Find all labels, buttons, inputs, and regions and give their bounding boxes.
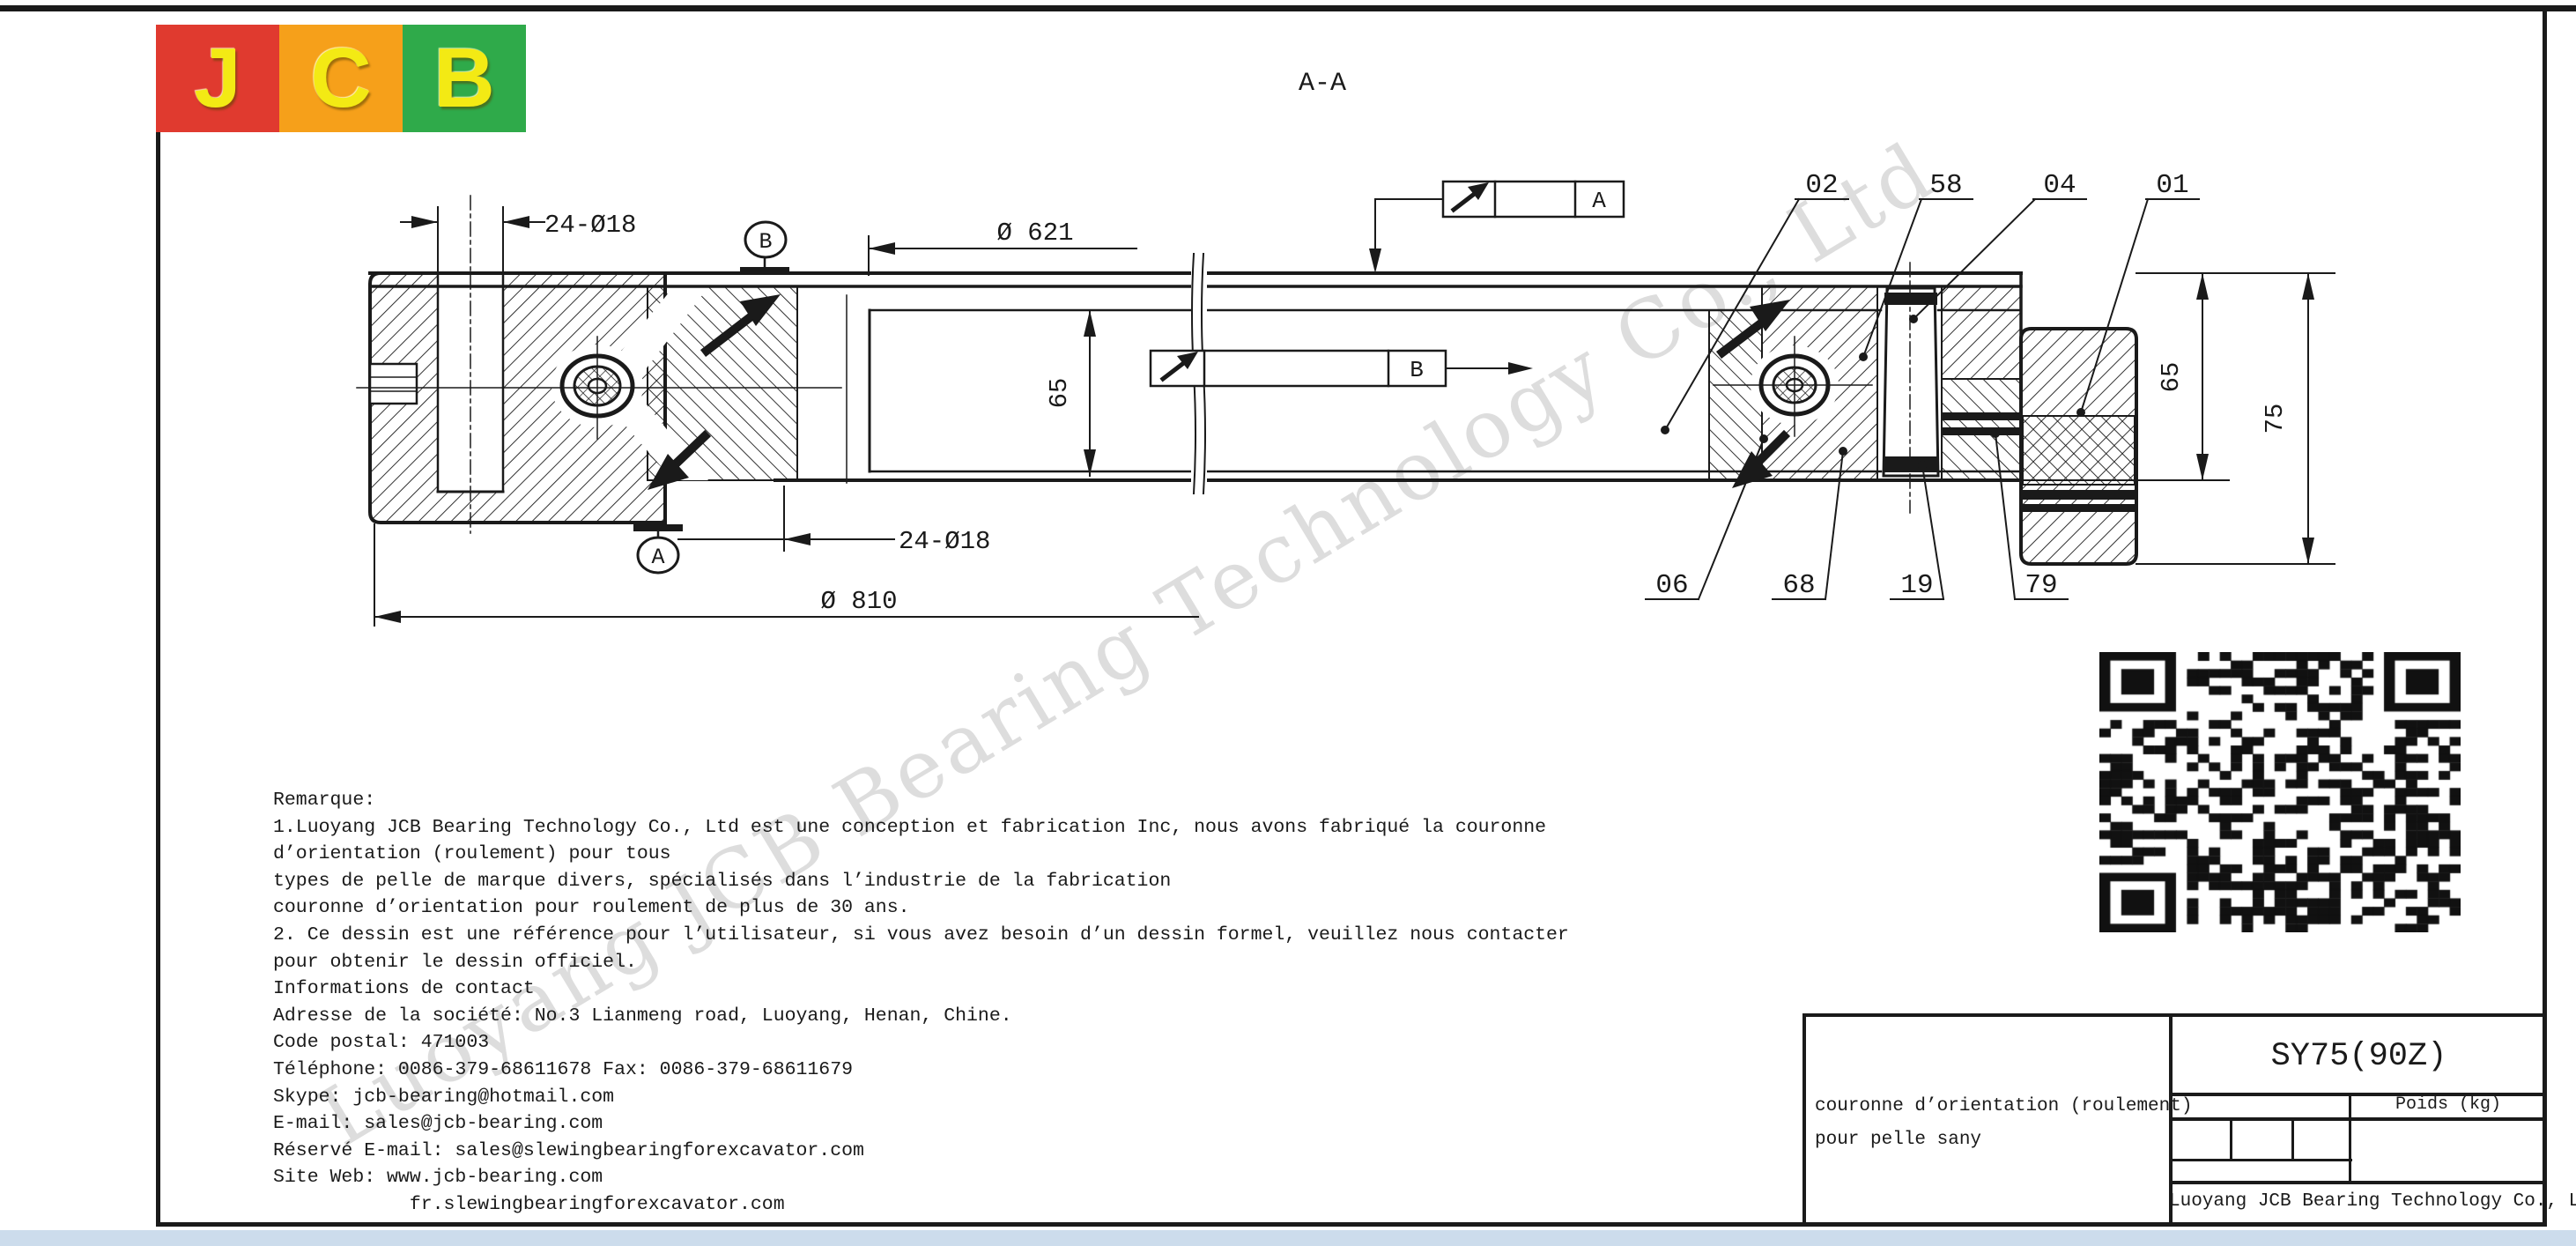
inner-ring-right-c — [1942, 286, 2021, 379]
part-description-line2: pour pelle sany — [1815, 1130, 1981, 1150]
note-line: pour obtenir le dessin officiel. — [273, 949, 1569, 976]
callout-01: 01 — [2156, 170, 2188, 201]
callouts-top: 02 58 04 01 — [1805, 170, 2188, 201]
note-line: Code postal: 471003 — [273, 1029, 1569, 1057]
note-line: Téléphone: 0086-379-68611678 Fax: 0086-3… — [273, 1057, 1569, 1084]
grease-fitting-notch — [370, 364, 417, 404]
weight-label: Poids (kg) — [2351, 1094, 2545, 1115]
dim-bolt-bottom: 24-Ø18 — [899, 527, 990, 556]
part-number: SY75(90Z) — [2173, 1038, 2545, 1075]
note-line: Remarque: — [273, 787, 1569, 814]
note-line: fr.slewingbearingforexcavator.com — [273, 1191, 1569, 1219]
finish-box-a-label: A — [1592, 188, 1606, 214]
note-line: 2. Ce dessin est une référence pour l’ut… — [273, 922, 1569, 949]
note-line: 1.Luoyang JCB Bearing Technology Co., Lt… — [273, 814, 1569, 842]
dim-height-mid: 65 — [1045, 378, 1074, 409]
note-line: Informations de contact — [273, 975, 1569, 1003]
drawing-sheet: Luoyang JCB Bearing Technology Co., Ltd … — [0, 0, 2576, 1246]
section-label: A-A — [1299, 69, 1346, 99]
datum-a-label: A — [651, 545, 664, 570]
part-description-line1: couronne d’orientation (roulement) — [1815, 1096, 2192, 1116]
note-line: types de pelle de marque divers, spécial… — [273, 868, 1569, 895]
callout-19: 19 — [1900, 570, 1933, 601]
callout-79: 79 — [2025, 570, 2057, 601]
note-line: Site Web: www.jcb-bearing.com — [273, 1164, 1569, 1191]
notes-block: Remarque: 1.Luoyang JCB Bearing Technolo… — [273, 787, 1569, 1219]
note-line: Skype: jcb-bearing@hotmail.com — [273, 1084, 1569, 1111]
note-line: Réservé E-mail: sales@slewingbearingfore… — [273, 1138, 1569, 1165]
note-line: E-mail: sales@jcb-bearing.com — [273, 1110, 1569, 1138]
company-name: Luoyang JCB Bearing Technology Co., Ltd — [2169, 1191, 2545, 1212]
qr-code — [2099, 652, 2461, 932]
bearing-section: 24-Ø18 Ø 621 Ø 810 24-Ø18 65 65 75 B A — [357, 69, 2335, 626]
datum-a: A — [633, 524, 683, 573]
dim-outer-diameter: Ø 810 — [820, 587, 897, 616]
finish-box-a: A — [1369, 182, 1624, 273]
dim-height-right: 65 — [2157, 362, 2186, 393]
seal-arrows — [648, 294, 1790, 490]
note-line: d’orientation (roulement) pour tous — [273, 841, 1569, 868]
callout-02: 02 — [1805, 170, 1838, 201]
finish-box-b: B — [1151, 351, 1533, 386]
datum-b: B — [740, 222, 789, 274]
callouts-bottom: 06 68 19 79 — [1655, 570, 2057, 601]
note-line: Adresse de la société: No.3 Lianmeng roa… — [273, 1003, 1569, 1030]
dim-total-height: 75 — [2261, 404, 2290, 434]
note-line: couronne d’orientation pour roulement de… — [273, 894, 1569, 922]
callout-58: 58 — [1929, 170, 1962, 201]
callout-68: 68 — [1782, 570, 1815, 601]
finish-box-b-label: B — [1410, 357, 1424, 383]
datum-b-label: B — [759, 229, 772, 255]
callout-06: 06 — [1655, 570, 1688, 601]
callout-04: 04 — [2043, 170, 2076, 201]
dim-bolt-top: 24-Ø18 — [544, 211, 636, 240]
dim-inner-diameter: Ø 621 — [996, 219, 1073, 248]
